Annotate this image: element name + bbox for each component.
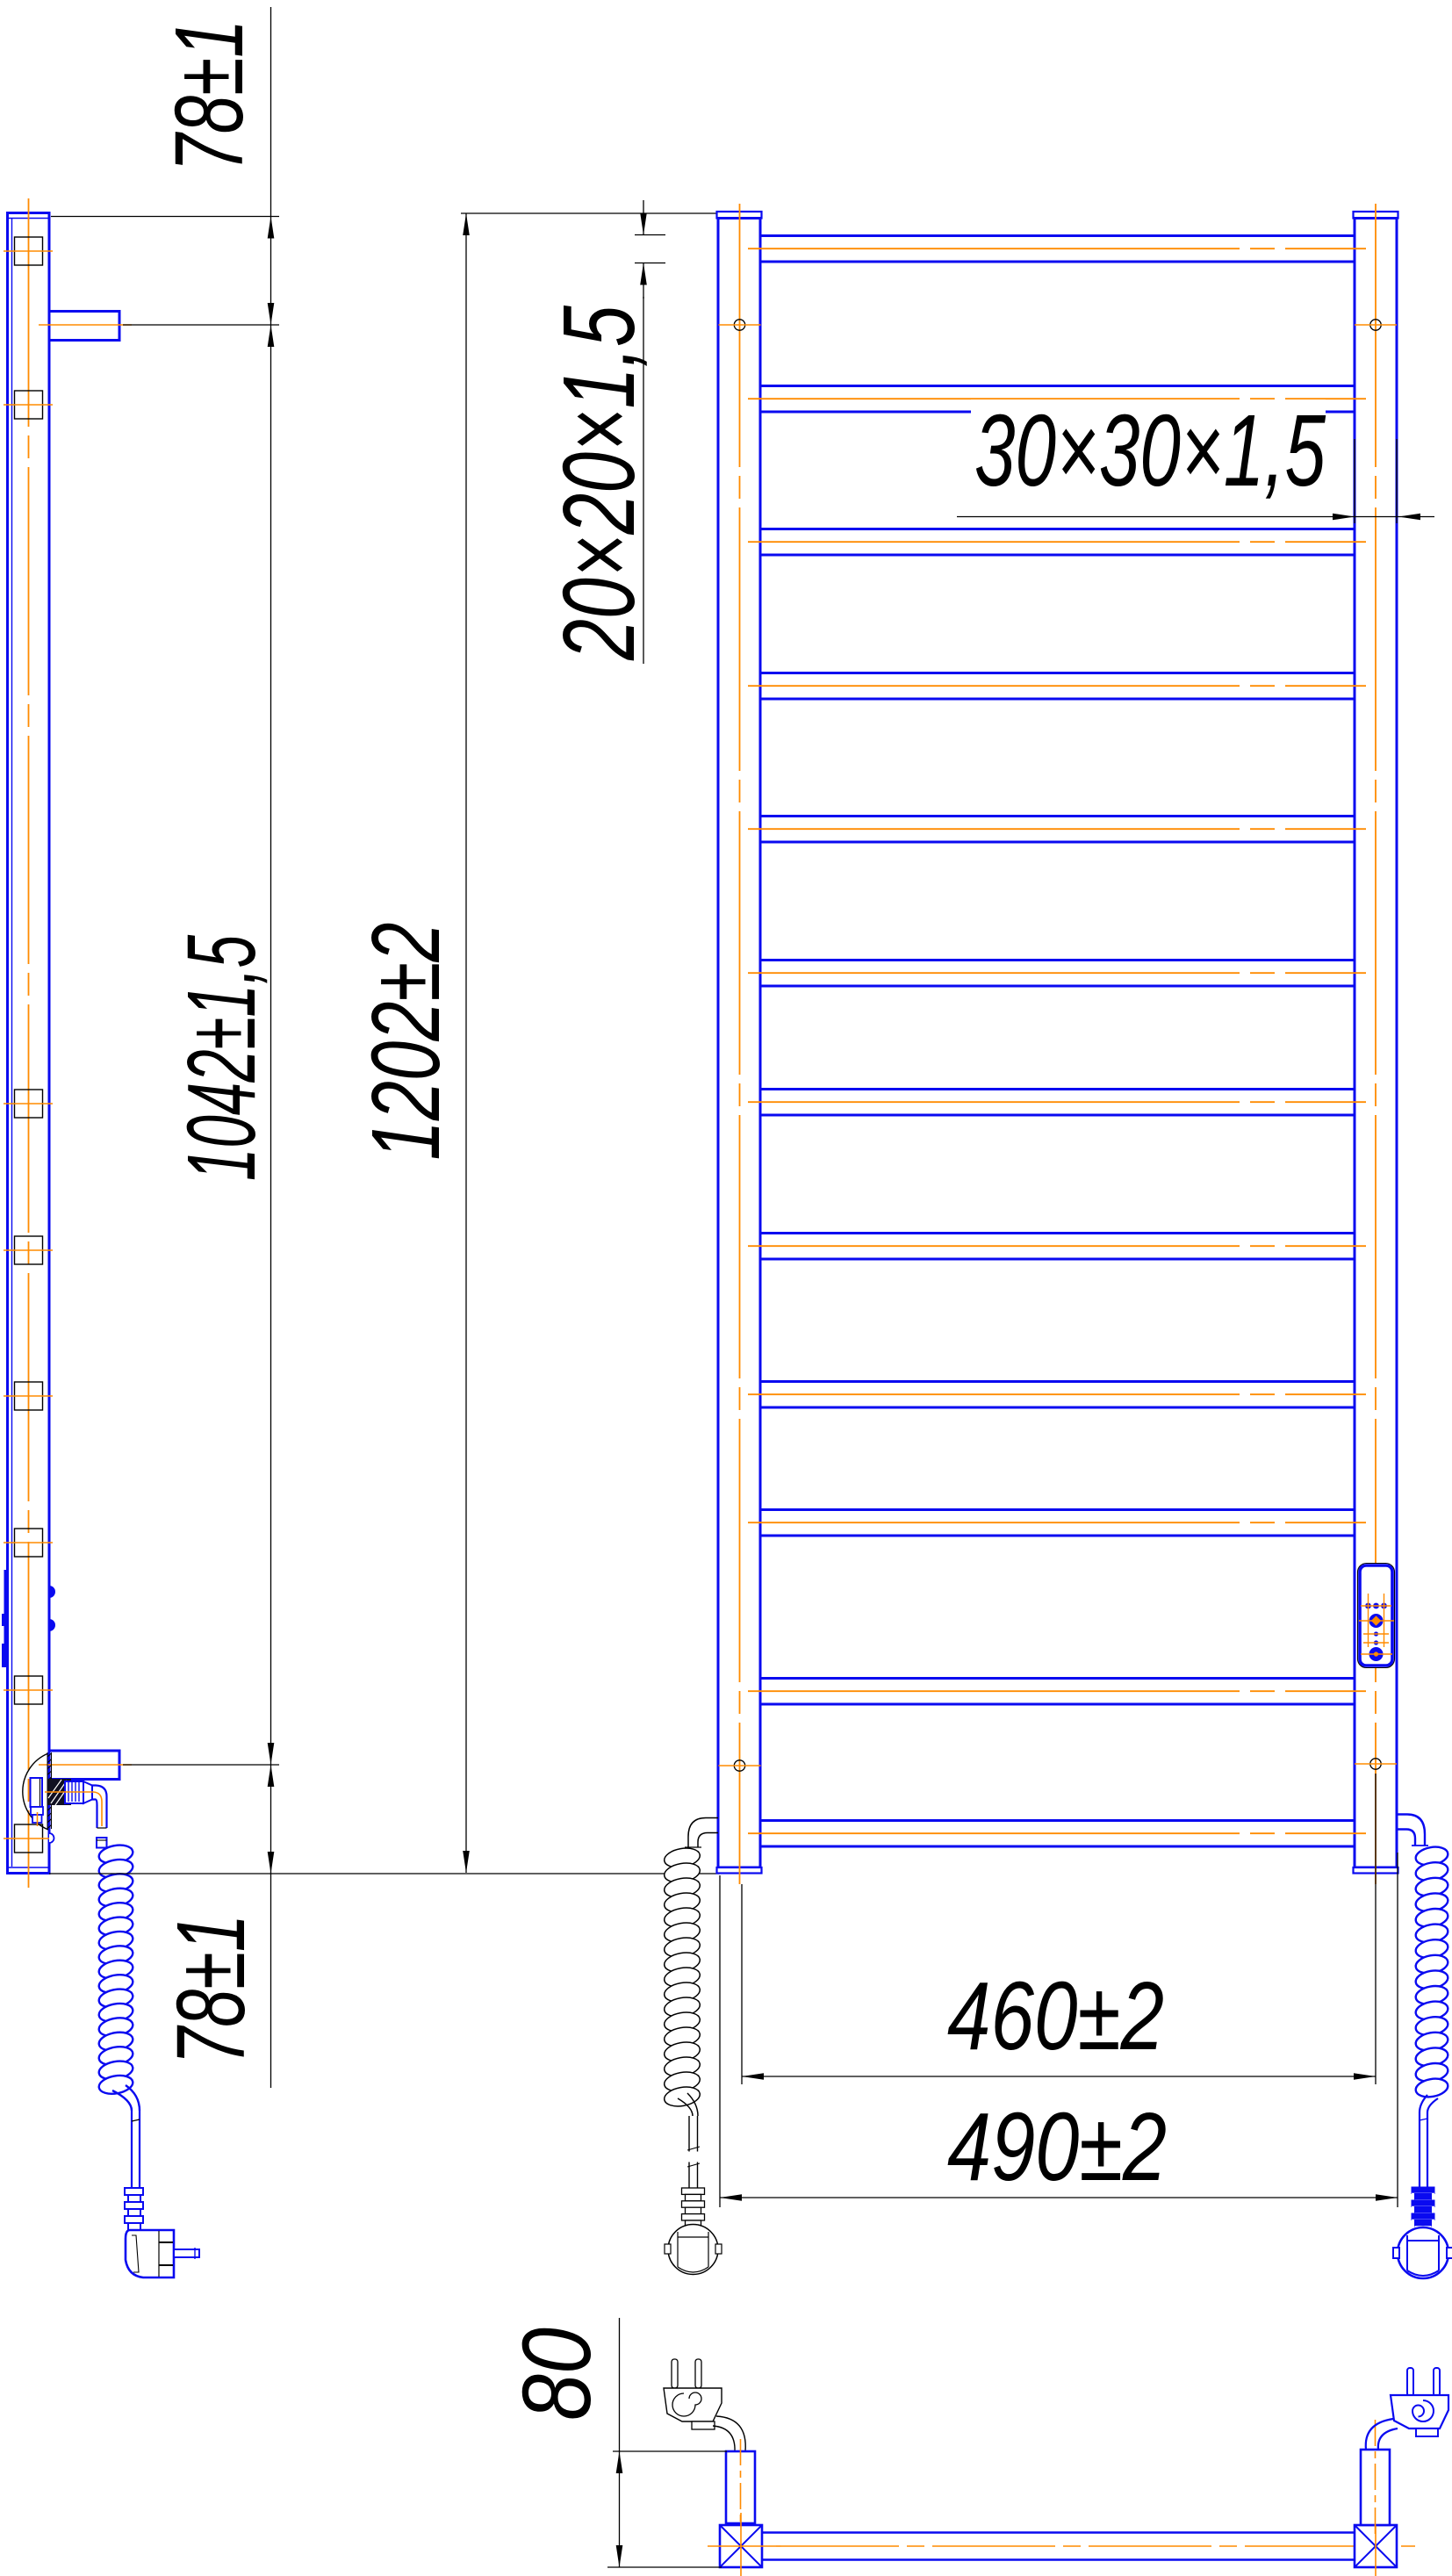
svg-text:20×20×1,5: 20×20×1,5 xyxy=(542,306,656,661)
svg-text:460±2: 460±2 xyxy=(947,1962,1164,2070)
svg-text:1202±2: 1202±2 xyxy=(352,923,460,1161)
svg-text:78±1: 78±1 xyxy=(155,19,263,172)
svg-text:1042±1,5: 1042±1,5 xyxy=(168,935,276,1181)
svg-text:78±1: 78±1 xyxy=(157,1914,265,2065)
svg-text:80: 80 xyxy=(503,2328,611,2421)
svg-text:30×30×1,5: 30×30×1,5 xyxy=(974,393,1326,507)
svg-text:490±2: 490±2 xyxy=(947,2093,1167,2201)
